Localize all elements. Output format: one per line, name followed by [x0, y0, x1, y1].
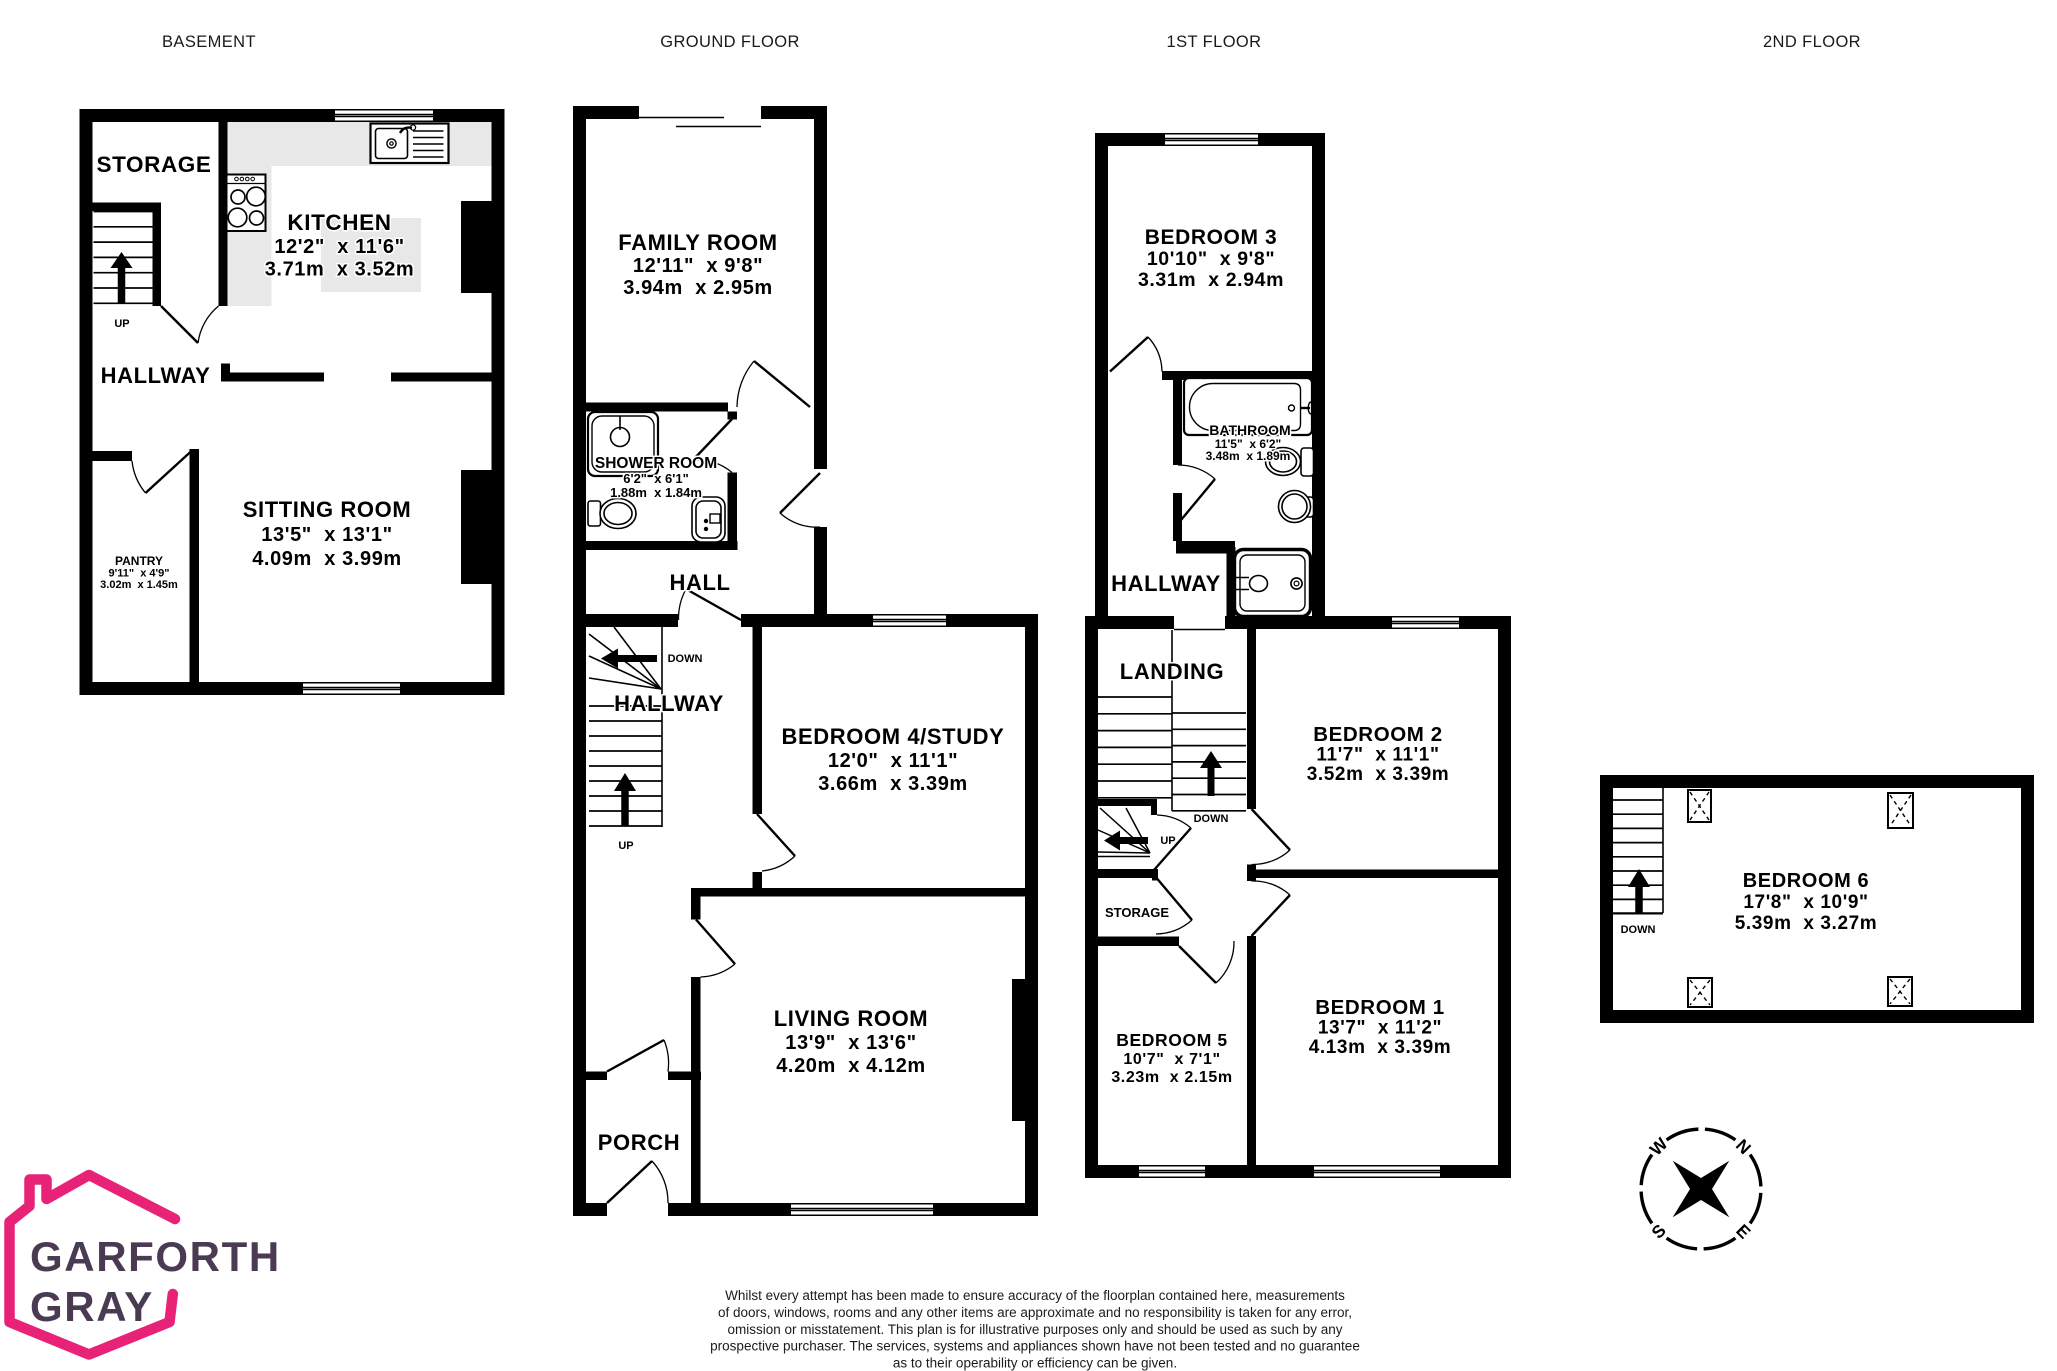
svg-text:DOWN: DOWN	[1194, 813, 1229, 825]
svg-text:10'7" x 7'1": 10'7" x 7'1"	[1123, 1051, 1220, 1068]
svg-text:of doors, windows, rooms and a: of doors, windows, rooms and any other i…	[718, 1305, 1352, 1320]
svg-text:3.02m x 1.45m: 3.02m x 1.45m	[100, 579, 178, 591]
svg-text:12'11" x 9'8": 12'11" x 9'8"	[633, 255, 763, 277]
svg-text:HALLWAY: HALLWAY	[614, 691, 724, 716]
svg-text:as to their operability or eff: as to their operability or efficiency ca…	[893, 1356, 1177, 1371]
svg-text:SHOWER ROOM: SHOWER ROOM	[595, 455, 717, 472]
svg-text:Whilst every attempt has been: Whilst every attempt has been made to en…	[725, 1288, 1345, 1303]
svg-text:BEDROOM 2: BEDROOM 2	[1313, 723, 1443, 746]
svg-text:6'2" x 6'1": 6'2" x 6'1"	[623, 471, 689, 486]
svg-text:3.94m x 2.95m: 3.94m x 2.95m	[623, 277, 773, 299]
svg-text:BEDROOM 5: BEDROOM 5	[1116, 1030, 1227, 1050]
svg-text:4.20m x 4.12m: 4.20m x 4.12m	[776, 1055, 926, 1077]
svg-text:HALLWAY: HALLWAY	[101, 363, 211, 388]
svg-text:5.39m x 3.27m: 5.39m x 3.27m	[1735, 913, 1878, 934]
svg-text:GRAY: GRAY	[30, 1283, 154, 1330]
svg-text:STORAGE: STORAGE	[1105, 905, 1169, 920]
svg-text:10'10" x 9'8": 10'10" x 9'8"	[1147, 248, 1275, 270]
svg-text:3.66m x 3.39m: 3.66m x 3.39m	[818, 773, 968, 795]
svg-text:3.48m x 1.89m: 3.48m x 1.89m	[1206, 449, 1291, 463]
svg-text:GROUND FLOOR: GROUND FLOOR	[660, 33, 800, 51]
svg-text:DOWN: DOWN	[1621, 924, 1656, 936]
svg-text:13'9" x 13'6": 13'9" x 13'6"	[785, 1032, 916, 1054]
svg-text:DOWN: DOWN	[668, 653, 703, 665]
svg-text:3.52m x 3.39m: 3.52m x 3.39m	[1307, 764, 1450, 785]
svg-text:omission or misstatement. This: omission or misstatement. This plan is f…	[727, 1322, 1342, 1337]
svg-text:GARFORTH: GARFORTH	[30, 1233, 281, 1280]
svg-text:BEDROOM 6: BEDROOM 6	[1743, 870, 1870, 892]
svg-text:SITTING ROOM: SITTING ROOM	[243, 497, 412, 522]
svg-text:13'5" x 13'1": 13'5" x 13'1"	[261, 524, 392, 546]
svg-text:3.23m x 2.15m: 3.23m x 2.15m	[1111, 1069, 1232, 1086]
svg-text:UP: UP	[618, 840, 633, 852]
svg-text:2ND FLOOR: 2ND FLOOR	[1763, 33, 1861, 51]
svg-text:LANDING: LANDING	[1120, 659, 1224, 684]
svg-text:PORCH: PORCH	[598, 1130, 680, 1155]
svg-text:KITCHEN: KITCHEN	[287, 210, 391, 235]
svg-text:LIVING ROOM: LIVING ROOM	[774, 1006, 929, 1031]
svg-text:PANTRY: PANTRY	[115, 554, 163, 568]
svg-text:FAMILY ROOM: FAMILY ROOM	[618, 230, 777, 255]
svg-text:prospective purchaser. The ser: prospective purchaser. The services, sys…	[710, 1339, 1360, 1354]
svg-text:1ST FLOOR: 1ST FLOOR	[1167, 33, 1262, 51]
svg-text:11'7" x 11'1": 11'7" x 11'1"	[1316, 745, 1439, 766]
svg-text:STORAGE: STORAGE	[96, 152, 211, 177]
svg-text:HALLWAY: HALLWAY	[1111, 571, 1221, 596]
svg-text:BEDROOM 4/STUDY: BEDROOM 4/STUDY	[782, 724, 1005, 749]
svg-text:4.13m x 3.39m: 4.13m x 3.39m	[1309, 1037, 1452, 1058]
svg-text:12'0" x 11'1": 12'0" x 11'1"	[828, 750, 958, 772]
svg-text:4.09m x 3.99m: 4.09m x 3.99m	[252, 548, 402, 570]
svg-text:BEDROOM 1: BEDROOM 1	[1315, 996, 1445, 1019]
svg-text:BASEMENT: BASEMENT	[162, 33, 256, 51]
svg-text:12'2" x 11'6": 12'2" x 11'6"	[274, 236, 404, 258]
svg-text:3.31m x 2.94m: 3.31m x 2.94m	[1138, 269, 1284, 291]
svg-text:BATHROOM: BATHROOM	[1209, 422, 1290, 438]
svg-text:17'8" x 10'9": 17'8" x 10'9"	[1743, 892, 1868, 913]
svg-text:HALL: HALL	[669, 570, 730, 595]
svg-text:1.88m x 1.84m: 1.88m x 1.84m	[610, 485, 702, 500]
svg-text:BEDROOM 3: BEDROOM 3	[1145, 226, 1278, 249]
svg-text:13'7" x 11'2": 13'7" x 11'2"	[1318, 1018, 1442, 1039]
svg-text:UP: UP	[114, 318, 129, 330]
svg-text:UP: UP	[1160, 835, 1175, 847]
svg-text:9'11" x 4'9": 9'11" x 4'9"	[109, 568, 170, 580]
svg-text:3.71m x 3.52m: 3.71m x 3.52m	[265, 259, 415, 281]
